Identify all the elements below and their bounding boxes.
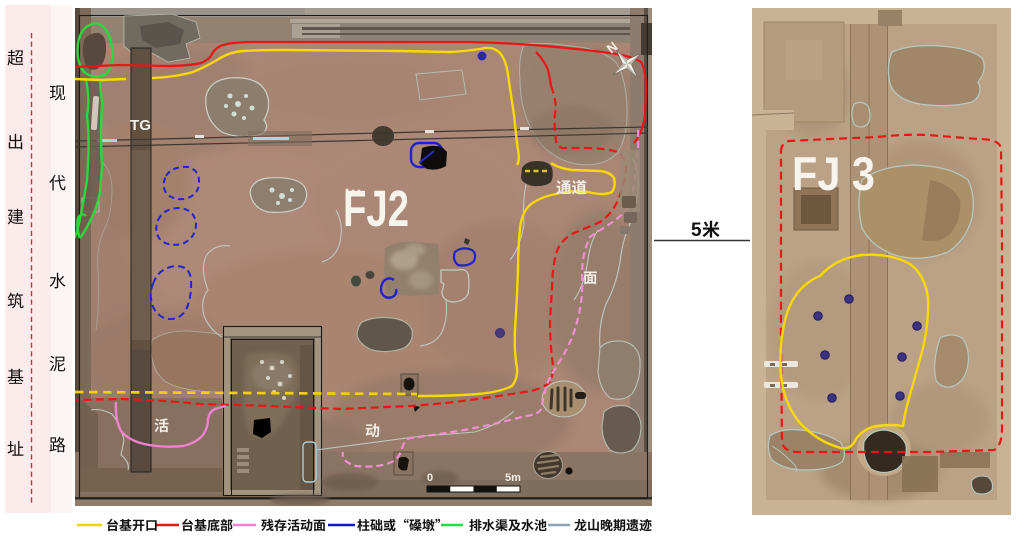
svg-text:FJ2: FJ2 — [343, 180, 409, 237]
svg-text:5: 5 — [691, 220, 702, 241]
svg-text:5m: 5m — [505, 472, 521, 484]
svg-text:FJ 3: FJ 3 — [792, 147, 875, 200]
svg-text:TG: TG — [130, 117, 151, 134]
svg-text:0: 0 — [427, 472, 433, 484]
